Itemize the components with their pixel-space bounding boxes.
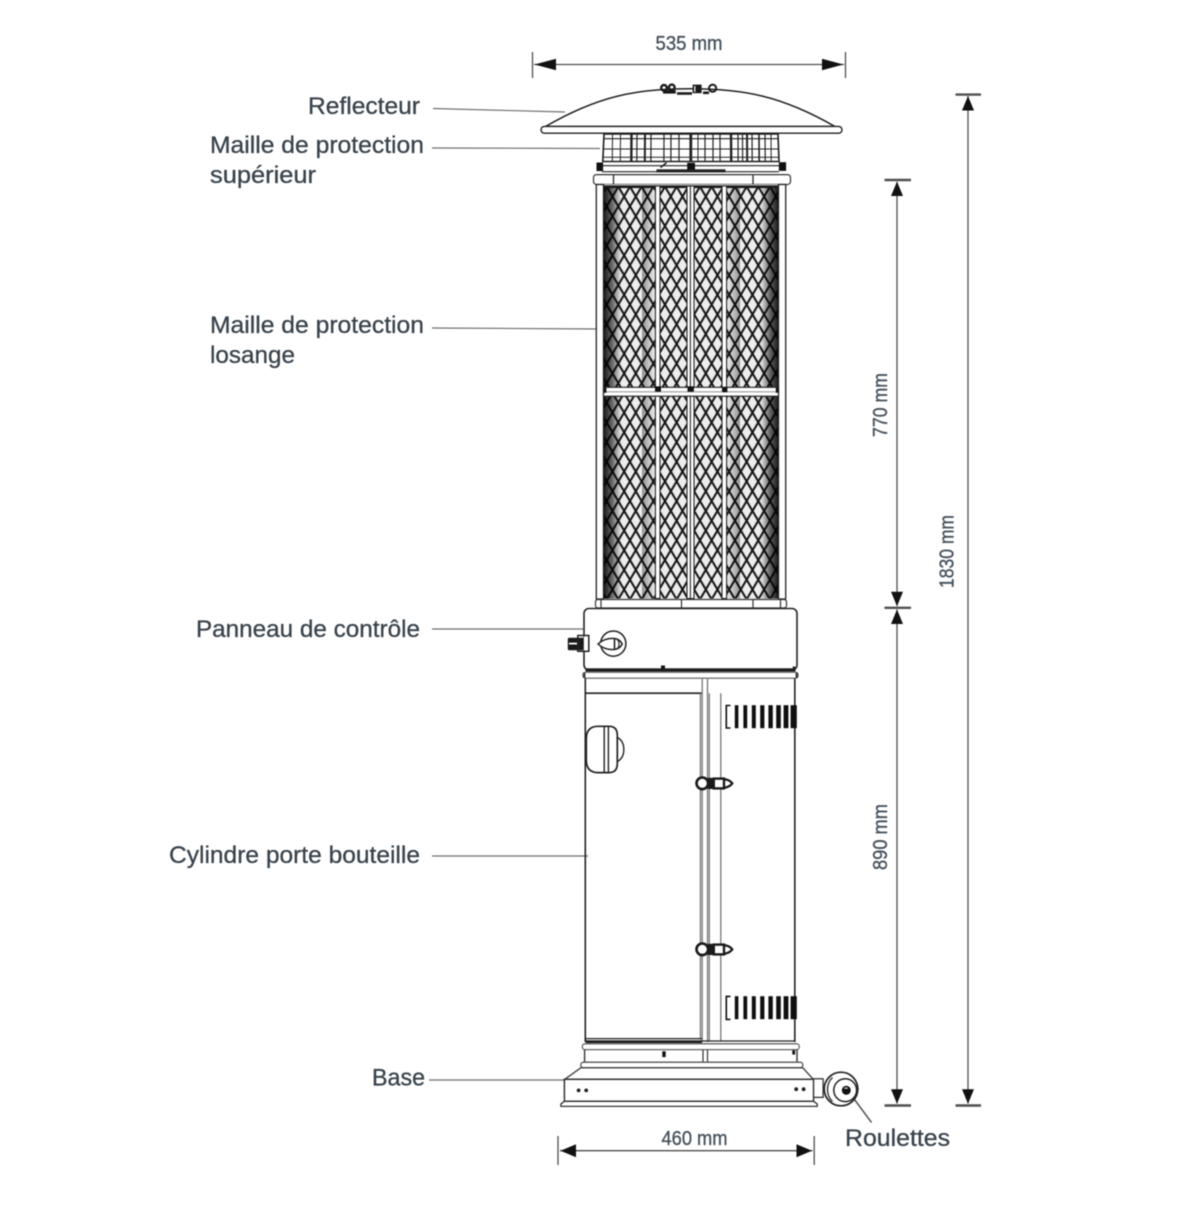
svg-text:Maille de protection: Maille de protection — [210, 132, 424, 159]
svg-text:Maille de protection: Maille de protection — [210, 312, 424, 339]
svg-text:770 mm: 770 mm — [869, 373, 892, 437]
svg-text:Panneau de contrôle: Panneau de contrôle — [196, 616, 420, 643]
svg-text:890 mm: 890 mm — [869, 804, 892, 870]
svg-text:Roulettes: Roulettes — [845, 1125, 950, 1152]
svg-text:Cylindre porte bouteille: Cylindre porte bouteille — [169, 842, 420, 869]
svg-text:supérieur: supérieur — [210, 162, 316, 189]
svg-text:535 mm: 535 mm — [656, 32, 723, 55]
svg-text:460 mm: 460 mm — [662, 1127, 728, 1150]
svg-text:1830 mm: 1830 mm — [936, 515, 959, 588]
svg-text:Reflecteur: Reflecteur — [308, 93, 420, 120]
svg-text:losange: losange — [210, 342, 295, 369]
svg-text:Base: Base — [372, 1065, 425, 1092]
